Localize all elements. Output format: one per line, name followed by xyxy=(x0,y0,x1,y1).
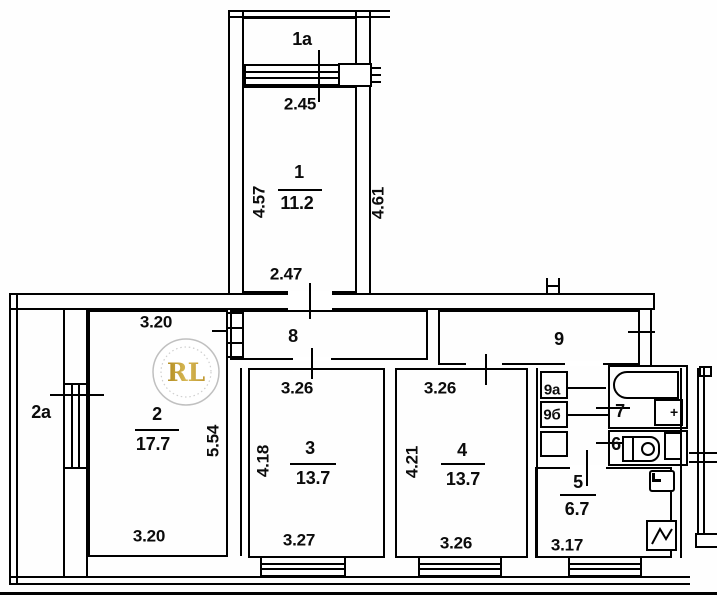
door-tick-corridor9 xyxy=(628,331,655,333)
room-3-left-wall-line xyxy=(240,368,242,556)
kitchen-area: 6.7 xyxy=(565,500,589,518)
washbasin-plus: + xyxy=(670,405,678,419)
scan-bottom-edge xyxy=(0,592,717,595)
room-3-number: 3 xyxy=(305,439,315,457)
watermark-badge: RL xyxy=(150,336,222,408)
door-tick-kitchen xyxy=(586,450,588,486)
floor-plan: 1a 2.45 1 11.2 4.57 2.47 4.61 2a 3.20 2 … xyxy=(0,0,717,600)
window-room4 xyxy=(418,556,502,577)
exterior-tick xyxy=(695,533,717,535)
exterior-tick xyxy=(695,546,717,548)
right-wall-inner-line xyxy=(680,368,682,558)
fraction-line xyxy=(278,189,322,191)
dim-room-3-bottom: 3.27 xyxy=(283,532,315,549)
dim-room-1-bottom: 2.47 xyxy=(270,266,302,283)
faucet-icon xyxy=(652,473,655,482)
corridor-8-outline xyxy=(230,310,428,360)
wall-left-outer xyxy=(9,293,18,585)
dim-room-2-bottom: 3.20 xyxy=(133,528,165,545)
bathtub-icon xyxy=(613,371,679,399)
fraction-line xyxy=(290,463,336,465)
dim-room-2-top: 3.20 xyxy=(140,314,172,331)
room-3-area: 13.7 xyxy=(296,469,330,487)
door-tick-closet-9b xyxy=(566,414,608,416)
wall-tick xyxy=(371,74,381,76)
exterior-tick-join xyxy=(695,533,697,548)
corridor-9-outer-wall xyxy=(650,310,652,365)
corridor-8-number: 8 xyxy=(288,327,298,345)
window-balcony-1a xyxy=(244,64,340,86)
door-tick-closet-9a xyxy=(566,387,606,389)
fraction-line xyxy=(135,429,179,431)
exterior-tick xyxy=(689,461,717,463)
closet-9b-label: 9б xyxy=(543,408,560,423)
wall-right-room1 xyxy=(355,10,371,294)
wall-tick xyxy=(371,67,381,69)
wall-end-cap xyxy=(653,293,655,310)
washbasin-icon xyxy=(654,399,683,426)
wc-number: 6 xyxy=(611,435,621,453)
wall-tick xyxy=(371,81,381,83)
window-kitchen xyxy=(568,556,642,577)
dim-kitchen-bottom: 3.17 xyxy=(551,537,583,554)
balcony-2a-label: 2a xyxy=(31,403,51,421)
window-room3 xyxy=(260,556,346,577)
door-opening-room4-a xyxy=(466,362,502,366)
wall-top-main xyxy=(10,293,655,310)
balcony-1a-label: 1a xyxy=(292,30,312,48)
corridor-9-number: 9 xyxy=(554,330,564,348)
dim-room-2-right: 5.54 xyxy=(205,425,222,457)
dim-room-1-left: 4.57 xyxy=(251,186,268,218)
opening-corridor9-hall xyxy=(565,361,603,366)
balcony-door-1 xyxy=(338,63,372,87)
room-1-number: 1 xyxy=(294,163,304,181)
dim-room-3-top: 3.26 xyxy=(281,380,313,397)
dim-room-4-left: 4.21 xyxy=(404,446,421,478)
fraction-line xyxy=(560,494,596,496)
watermark-text: RL xyxy=(167,358,206,387)
kitchen-number: 5 xyxy=(573,473,583,491)
room-4-area: 13.7 xyxy=(446,470,480,488)
room-2-area: 17.7 xyxy=(136,435,170,453)
door-opening-kitchen xyxy=(570,465,606,470)
dim-room-4-top: 3.26 xyxy=(424,380,456,397)
fraction-line xyxy=(441,463,485,465)
stove-icon xyxy=(646,520,677,551)
room-1-area: 11.2 xyxy=(280,194,313,212)
room-4-number: 4 xyxy=(457,441,467,459)
bathroom-number: 7 xyxy=(615,402,625,420)
closet-9a-label: 9a xyxy=(544,383,560,398)
corridor-9-outline xyxy=(438,310,640,365)
toilet-tank-line xyxy=(632,436,634,462)
closet-box-outline xyxy=(540,431,568,457)
toilet-bowl-icon xyxy=(641,442,655,456)
dim-room-4-bottom: 3.26 xyxy=(440,535,472,552)
door-tick-room2 xyxy=(212,330,228,332)
dim-balcony-1a: 2.45 xyxy=(284,96,316,113)
exterior-tick xyxy=(689,452,717,454)
exterior-notch-top xyxy=(699,366,712,377)
entrance-mark xyxy=(546,278,560,294)
wall-bottom-outer xyxy=(9,576,690,585)
dim-right-wall: 4.61 xyxy=(370,187,387,219)
dim-room-3-left: 4.18 xyxy=(255,445,272,477)
stove-zigzag-icon xyxy=(648,522,675,549)
